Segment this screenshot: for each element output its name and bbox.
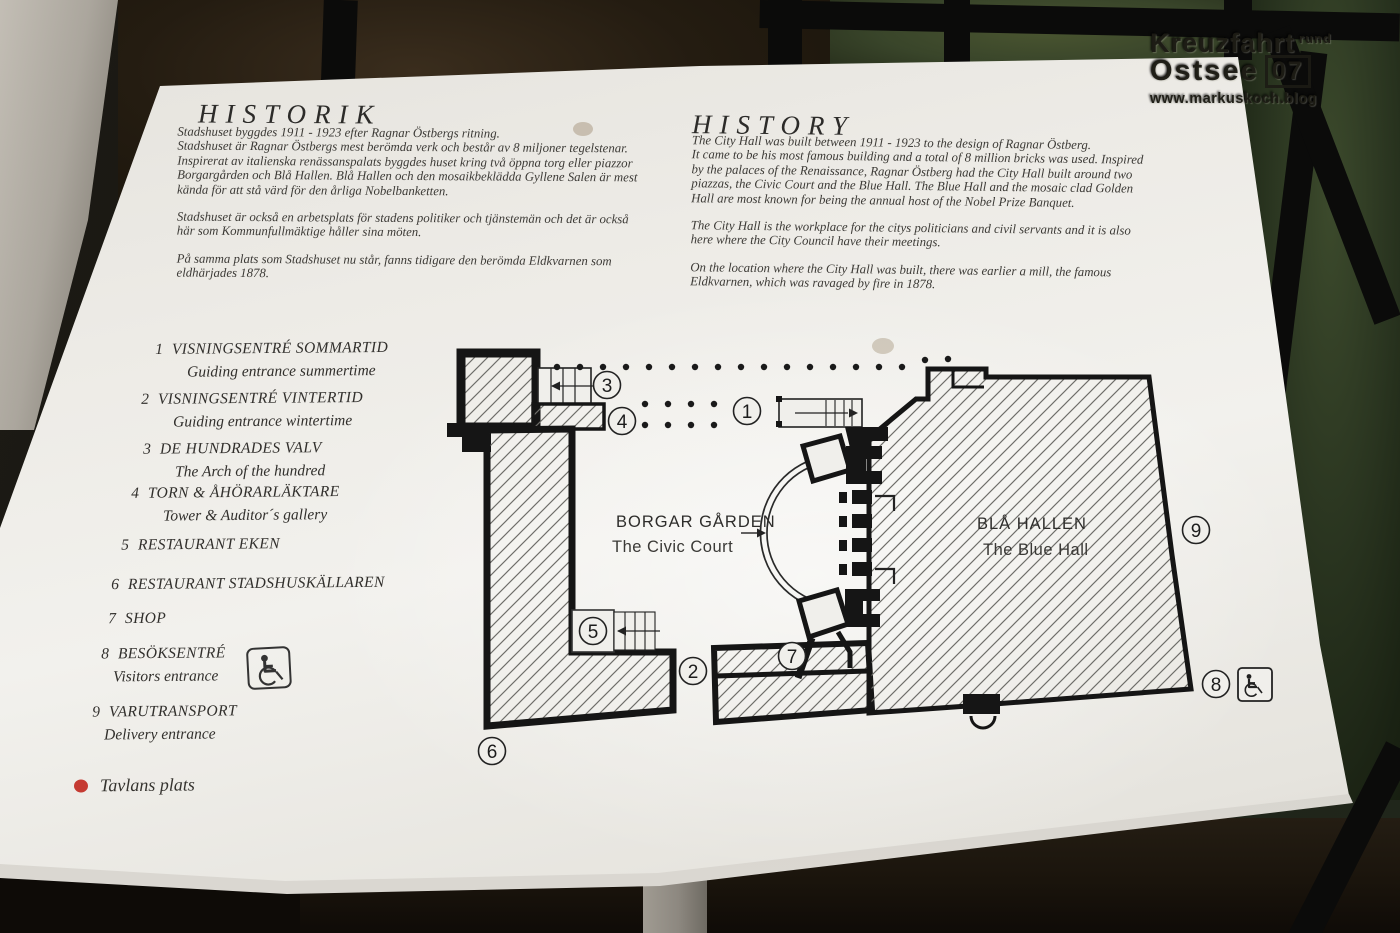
- legend-label-sv: VISNINGSENTRÉ SOMMARTID: [172, 339, 388, 358]
- english-paragraph: The City Hall is the workplace for the c…: [691, 218, 1147, 252]
- legend-label-en: The Arch of the hundred: [175, 460, 325, 482]
- svg-text:4: 4: [617, 412, 628, 433]
- legend-number: 1: [143, 339, 163, 360]
- svg-text:2: 2: [688, 662, 699, 683]
- watermark-url: www.markuskoch.blog: [1150, 91, 1365, 107]
- legend-number: 8: [89, 643, 109, 664]
- map-number-3: 3: [594, 372, 621, 399]
- label-civic-court-sv: BORGAR GÅRDEN: [616, 512, 776, 531]
- photo-watermark: Kreuzfahrt rund Ostsee 07 www.markuskoch…: [1150, 28, 1365, 107]
- map-wall-bar: [533, 404, 604, 429]
- watermark-badge: 07: [1265, 55, 1311, 88]
- legend-number: 3: [131, 439, 151, 460]
- map-wall: [776, 396, 782, 402]
- legend-item-8: 8BESÖKSENTRÉ Visitors entrance: [89, 642, 226, 687]
- svg-text:5: 5: [588, 622, 599, 643]
- floor-plan: BORGAR GÅRDEN The Civic Court BLÅ HALLEN…: [430, 330, 1290, 800]
- fence-bar: [944, 0, 970, 62]
- legend-item-4: 4TORN & ÅHÖRARLÄKTARE Tower & Auditor´s …: [119, 481, 340, 527]
- legend-label-en: Delivery entrance: [104, 723, 237, 745]
- legend-item-1: 1VISNINGSENTRÉ SOMMARTID Guiding entranc…: [143, 337, 389, 383]
- legend-label-en: Visitors entrance: [113, 665, 226, 687]
- legend-item-7: 7SHOP: [96, 608, 166, 630]
- map-west-wing: [487, 429, 673, 726]
- legend-label-en: Tower & Auditor´s gallery: [163, 504, 340, 527]
- label-civic-court-en: The Civic Court: [612, 538, 733, 556]
- legend-label-sv: DE HUNDRADES VALV: [160, 439, 322, 457]
- red-dot-icon: [74, 779, 88, 792]
- legend-label-sv: VISNINGSENTRÉ VINTERTID: [158, 389, 363, 408]
- door-swing-arc: [971, 716, 995, 728]
- legend-label-sv: TORN & ÅHÖRARLÄKTARE: [148, 483, 340, 502]
- wheelchair-icon: [244, 644, 294, 694]
- legend-label-en: Guiding entrance summertime: [187, 360, 388, 383]
- legend-number: 7: [96, 608, 116, 629]
- swedish-paragraph: Stadshuset är också en arbetsplats för s…: [177, 210, 639, 242]
- svg-text:9: 9: [1191, 521, 1202, 542]
- label-blue-hall-en: The Blue Hall: [983, 541, 1089, 559]
- legend-label-sv: BESÖKSENTRÉ: [118, 644, 226, 662]
- legend-item-6: 6RESTAURANT STADSHUSKÄLLAREN: [99, 572, 385, 595]
- legend-number: 9: [80, 702, 100, 723]
- board-location-marker: Tavlans plats: [74, 774, 195, 796]
- map-number-9: 9: [1183, 517, 1210, 544]
- legend-item-9: 9VARUTRANSPORT Delivery entrance: [80, 700, 237, 745]
- legend-number: 6: [99, 574, 119, 595]
- english-text-column: The City Hall was built between 1911 - 1…: [690, 133, 1148, 294]
- english-paragraph: On the location where the City Hall was …: [690, 260, 1146, 294]
- svg-text:3: 3: [602, 376, 613, 397]
- legend-label-sv: RESTAURANT STADSHUSKÄLLAREN: [128, 574, 385, 593]
- legend-label-sv: RESTAURANT EKEN: [138, 535, 280, 553]
- watermark-line2: Ostsee: [1150, 55, 1259, 88]
- legend-label-sv: SHOP: [125, 610, 166, 627]
- svg-text:7: 7: [787, 647, 798, 668]
- legend-item-5: 5RESTAURANT EKEN: [109, 533, 280, 555]
- map-number-1: 1: [734, 398, 761, 425]
- map-number-7: 7: [779, 643, 806, 670]
- map-tower: [461, 353, 536, 427]
- map-south-door: [963, 694, 1000, 714]
- english-paragraph: It came to be his most famous building a…: [691, 148, 1148, 211]
- photo-of-information-board: HISTORIK HISTORY Stadshuset byggdes 1911…: [0, 0, 1400, 933]
- legend-item-3: 3DE HUNDRADES VALV The Arch of the hundr…: [131, 437, 325, 483]
- swedish-text-column: Stadshuset byggdes 1911 - 1923 efter Rag…: [177, 125, 640, 283]
- map-stairs-north: [538, 368, 600, 404]
- watermark-line1-small: rund: [1299, 31, 1332, 46]
- map-number-5: 5: [580, 618, 607, 645]
- legend-number: 5: [109, 535, 129, 556]
- map-number-4: 4: [609, 408, 636, 435]
- legend-label-en: Guiding entrance wintertime: [173, 410, 363, 433]
- marker-label: Tavlans plats: [100, 774, 195, 796]
- swedish-paragraph: Stadshuset är Ragnar Östbergs mest beröm…: [177, 139, 639, 199]
- map-wall: [776, 421, 782, 427]
- map-number-2: 2: [680, 658, 707, 685]
- legend-number: 4: [119, 483, 139, 504]
- legend-label-sv: VARUTRANSPORT: [109, 702, 237, 720]
- legend-item-2: 2VISNINGSENTRÉ VINTERTID Guiding entranc…: [129, 387, 363, 433]
- svg-text:8: 8: [1211, 675, 1222, 696]
- map-number-8: 8: [1203, 671, 1230, 698]
- svg-text:6: 6: [487, 742, 498, 763]
- swedish-paragraph: På samma plats som Stadshuset nu står, f…: [177, 251, 639, 283]
- wheelchair-icon: [1238, 668, 1272, 701]
- map-number-6: 6: [479, 738, 506, 765]
- legend-number: 2: [129, 389, 149, 410]
- label-blue-hall-sv: BLÅ HALLEN: [977, 514, 1087, 533]
- svg-text:1: 1: [742, 402, 753, 423]
